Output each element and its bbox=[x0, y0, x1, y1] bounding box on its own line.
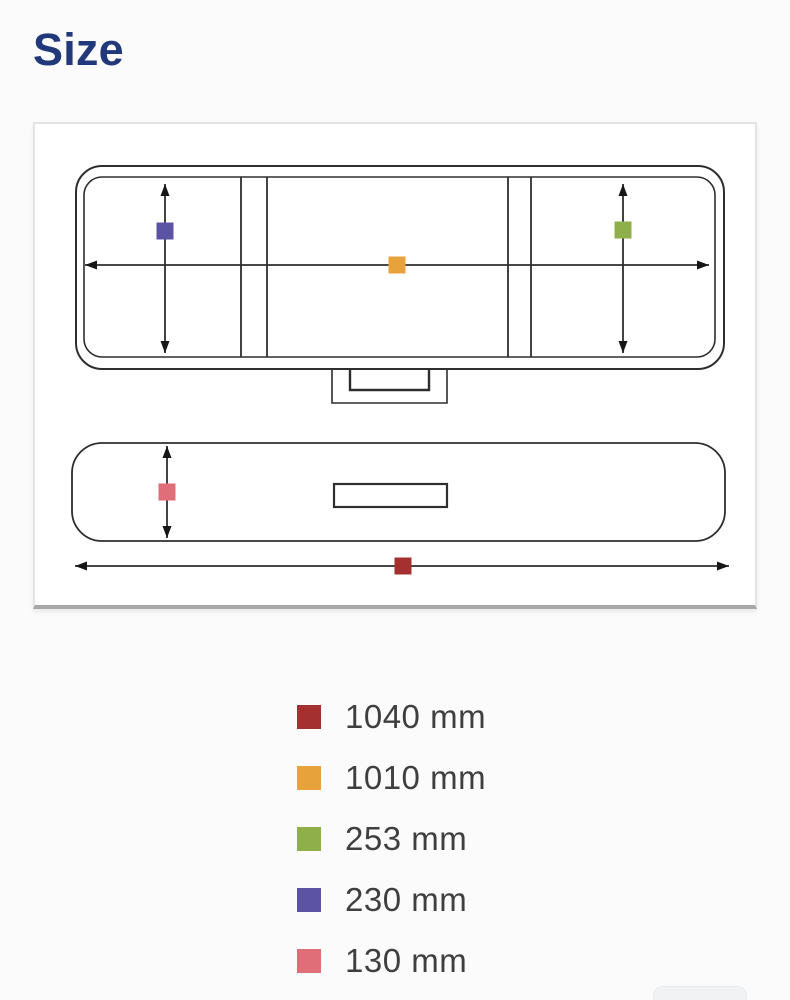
marker-square-230 bbox=[157, 223, 174, 240]
size-diagram-card bbox=[33, 122, 757, 609]
page-title: Size bbox=[33, 24, 124, 76]
legend-item-253: 253 mm bbox=[297, 822, 486, 855]
marker-square-1010 bbox=[389, 257, 406, 274]
mount-tab-inner bbox=[350, 370, 429, 390]
legend-swatch-1040 bbox=[297, 705, 321, 729]
legend-item-230: 230 mm bbox=[297, 883, 486, 916]
size-legend: 1040 mm 1010 mm 253 mm 230 mm 130 mm bbox=[297, 700, 486, 1000]
legend-item-130: 130 mm bbox=[297, 944, 486, 977]
legend-label-1040: 1040 mm bbox=[345, 700, 486, 733]
floating-button-partial[interactable] bbox=[653, 986, 747, 1000]
marker-square-1040 bbox=[395, 558, 412, 575]
legend-swatch-253 bbox=[297, 827, 321, 851]
legend-label-1010: 1010 mm bbox=[345, 761, 486, 794]
marker-square-130 bbox=[159, 484, 176, 501]
legend-label-253: 253 mm bbox=[345, 822, 467, 855]
marker-square-253 bbox=[615, 222, 632, 239]
front-view bbox=[72, 443, 725, 541]
dimension-diagram bbox=[35, 124, 755, 605]
overall-length bbox=[75, 558, 729, 575]
legend-label-230: 230 mm bbox=[345, 883, 467, 916]
size-section: Size bbox=[0, 0, 790, 1000]
legend-swatch-130 bbox=[297, 949, 321, 973]
legend-item-1040: 1040 mm bbox=[297, 700, 486, 733]
front-view-slot bbox=[334, 484, 447, 507]
legend-swatch-230 bbox=[297, 888, 321, 912]
legend-label-130: 130 mm bbox=[345, 944, 467, 977]
legend-item-1010: 1010 mm bbox=[297, 761, 486, 794]
legend-swatch-1010 bbox=[297, 766, 321, 790]
top-view bbox=[76, 166, 724, 403]
